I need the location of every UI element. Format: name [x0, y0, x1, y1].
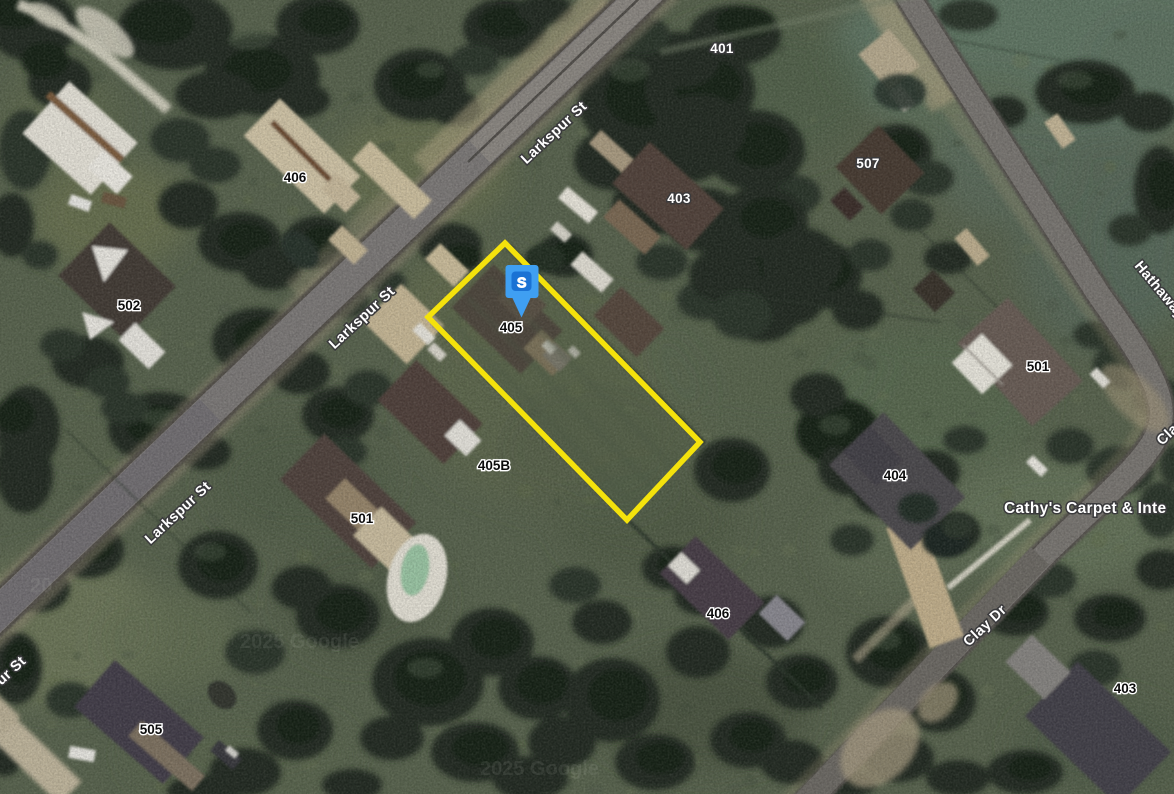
svg-text:507: 507 — [856, 156, 879, 171]
svg-text:501: 501 — [351, 511, 374, 526]
svg-text:S: S — [517, 276, 527, 292]
svg-text:505: 505 — [140, 722, 163, 737]
svg-text:405: 405 — [500, 320, 523, 335]
svg-text:401: 401 — [710, 41, 734, 56]
svg-text:403: 403 — [667, 191, 691, 206]
svg-text:406: 406 — [707, 606, 730, 621]
svg-text:2025 Google: 2025 Google — [480, 758, 599, 780]
svg-text:20: 20 — [30, 575, 52, 597]
svg-text:403: 403 — [1114, 681, 1137, 696]
svg-text:405B: 405B — [478, 458, 511, 473]
svg-text:404: 404 — [884, 468, 907, 483]
svg-text:501: 501 — [1027, 359, 1050, 374]
svg-text:502: 502 — [118, 298, 141, 313]
svg-text:Cathy's Carpet & Inte: Cathy's Carpet & Inte — [1004, 500, 1167, 517]
svg-text:406: 406 — [284, 170, 307, 185]
svg-text:2025 Google: 2025 Google — [240, 631, 359, 653]
